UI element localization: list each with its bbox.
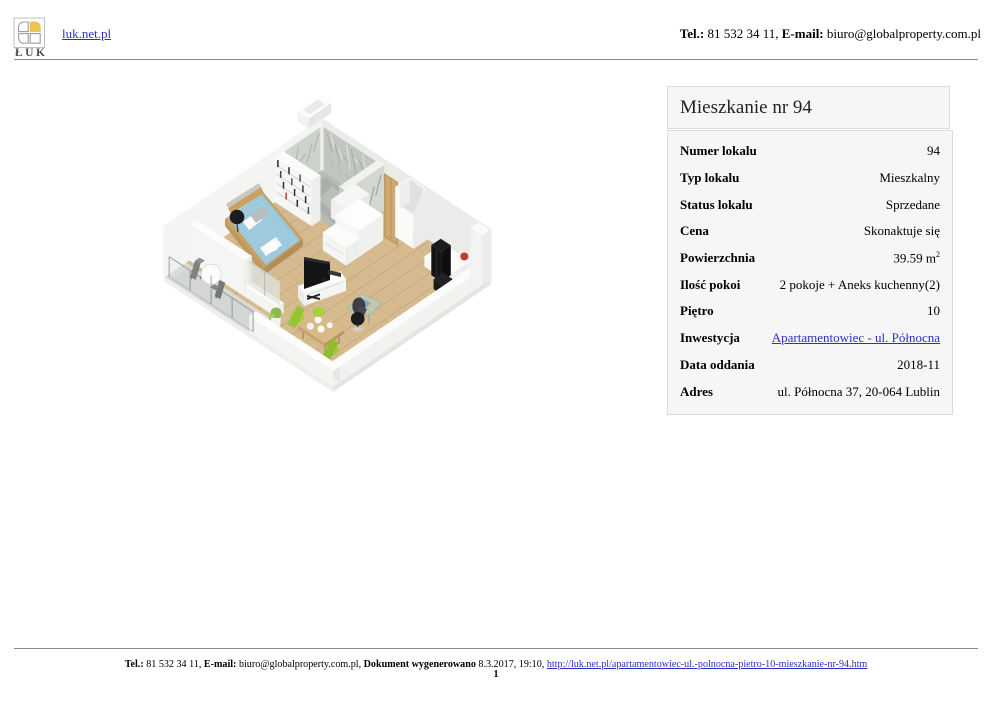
svg-text:ŁUK: ŁUK xyxy=(15,47,47,59)
